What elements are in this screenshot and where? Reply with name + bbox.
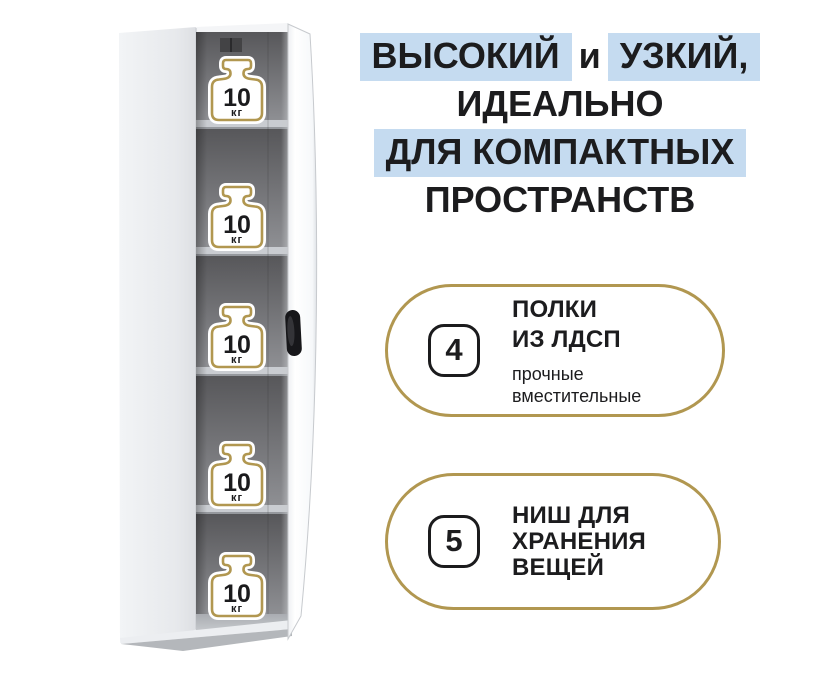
feature-title: ВЕЩЕЙ: [512, 555, 646, 581]
feature-card-niches: 5 НИШ ДЛЯ ХРАНЕНИЯ ВЕЩЕЙ: [385, 473, 721, 610]
feature-title: НИШ ДЛЯ: [512, 503, 646, 529]
headline-line-4: ПРОСТРАНСТВ: [425, 177, 695, 225]
product-infographic: 10 кг 10 кг 10 кг 10 кг 10 кг: [0, 0, 816, 700]
headline-line-1: ВЫСОКИЙ и УЗКИЙ,: [360, 33, 761, 81]
weight-capacity-icon: 10 кг: [212, 307, 262, 367]
headline-highlight: ДЛЯ КОМПАКТНЫХ: [374, 129, 747, 177]
weight-unit: кг: [231, 107, 243, 119]
weight-unit: кг: [231, 603, 243, 615]
weight-unit: кг: [231, 234, 243, 246]
weight-unit: кг: [231, 492, 243, 504]
feature-text: НИШ ДЛЯ ХРАНЕНИЯ ВЕЩЕЙ: [512, 503, 646, 581]
headline-highlight: ВЫСОКИЙ: [360, 33, 572, 81]
weight-capacity-icon: 10 кг: [212, 187, 262, 247]
headline: ВЫСОКИЙ и УЗКИЙ, ИДЕАЛЬНО ДЛЯ КОМПАКТНЫХ…: [348, 33, 772, 225]
feature-number: 4: [445, 332, 462, 368]
feature-title: ХРАНЕНИЯ: [512, 529, 646, 555]
feature-card-shelves: 4 ПОЛКИ ИЗ ЛДСП прочные вместительные: [385, 284, 725, 417]
headline-text: и: [579, 33, 601, 81]
feature-text: ПОЛКИ ИЗ ЛДСП прочные вместительные: [512, 295, 641, 407]
cabinet-illustration: 10 кг 10 кг 10 кг 10 кг 10 кг: [108, 18, 324, 658]
headline-highlight: УЗКИЙ,: [608, 33, 761, 81]
headline-text: ИДЕАЛЬНО: [456, 81, 663, 129]
headline-line-3: ДЛЯ КОМПАКТНЫХ: [374, 129, 747, 177]
door-handle: [285, 310, 302, 357]
weight-capacity-icon: 10 кг: [212, 445, 262, 505]
feature-title: ИЗ ЛДСП: [512, 325, 641, 355]
weight-capacity-icon: 10 кг: [212, 556, 262, 616]
feature-number: 5: [445, 523, 462, 559]
weight-unit: кг: [231, 354, 243, 366]
feature-title: ПОЛКИ: [512, 295, 641, 325]
headline-text: ПРОСТРАНСТВ: [425, 177, 695, 225]
feature-subtitle: прочные вместительные: [512, 363, 641, 407]
headline-line-2: ИДЕАЛЬНО: [456, 81, 663, 129]
feature-number-box: 4: [428, 324, 480, 377]
cabinet-side-panel: [119, 27, 196, 643]
weight-capacity-icon: 10 кг: [212, 60, 262, 120]
feature-number-box: 5: [428, 515, 480, 568]
